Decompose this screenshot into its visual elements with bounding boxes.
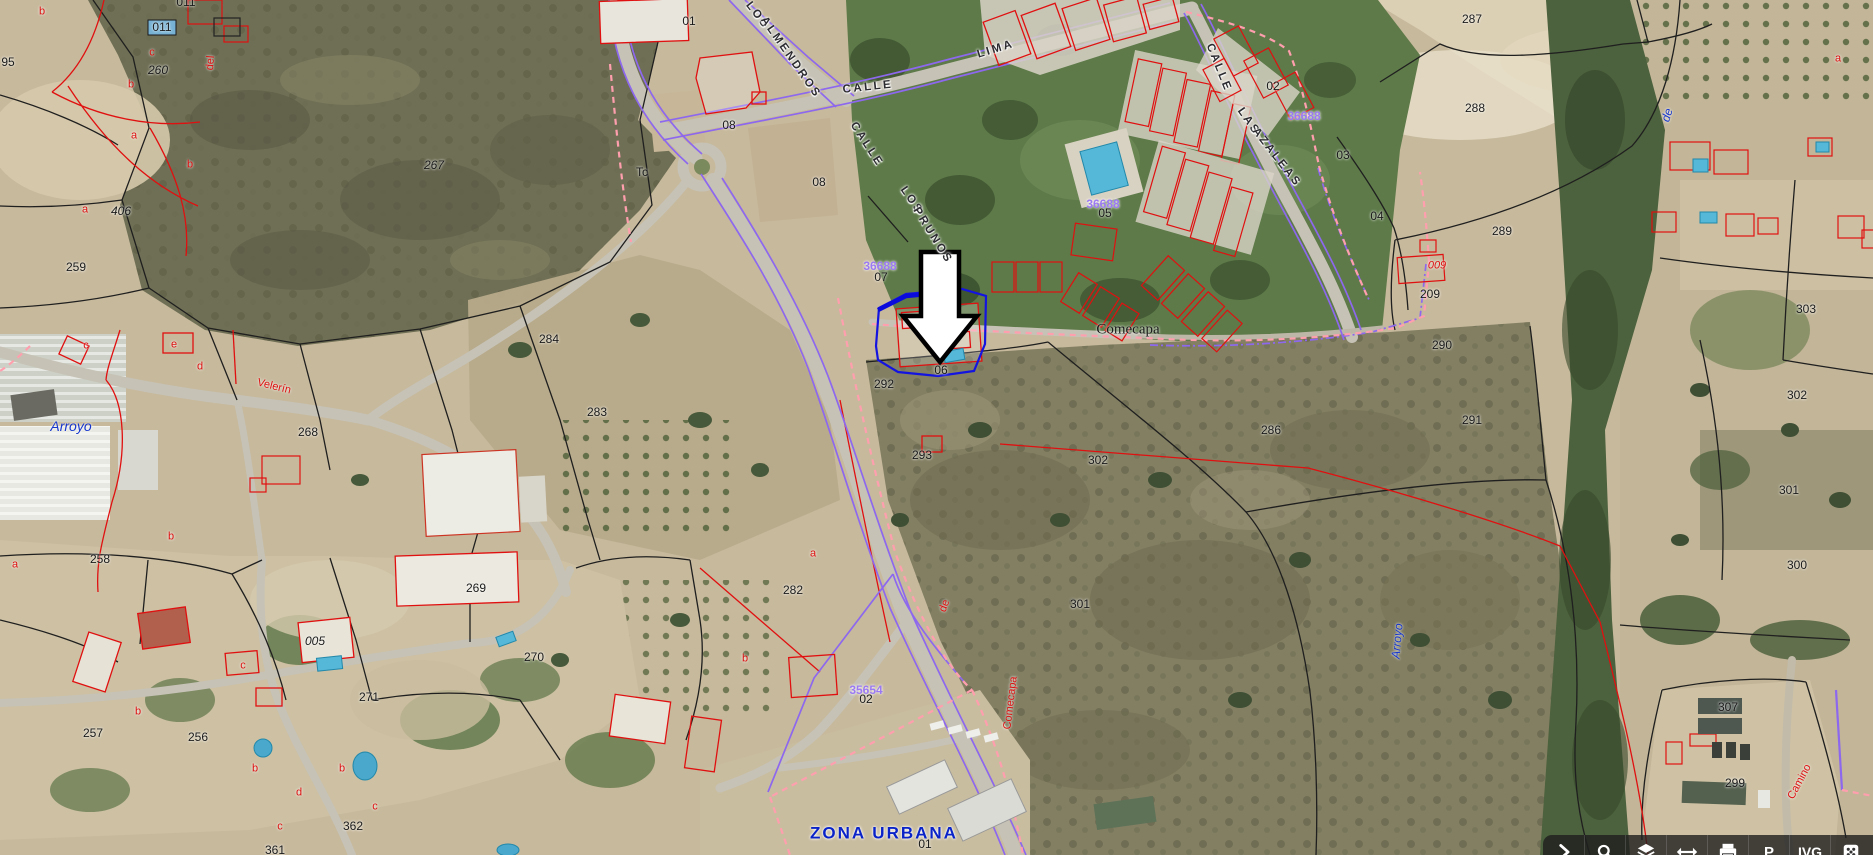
point-info-label: P xyxy=(1764,844,1774,855)
ivg-label: IVG xyxy=(1798,844,1822,855)
zoom-search-button[interactable] xyxy=(1584,835,1625,855)
printer-icon xyxy=(1718,842,1738,855)
map-viewport[interactable]: CALLELIMALOSALMENDROSCALLELOSPRUNOSCALLE… xyxy=(0,0,1873,855)
search-icon xyxy=(1596,843,1615,855)
measure-arrows-icon xyxy=(1676,845,1698,855)
ivg-button[interactable]: IVG xyxy=(1789,835,1830,855)
chevron-right-icon xyxy=(1555,843,1573,855)
layers-button[interactable] xyxy=(1625,835,1666,855)
point-info-button[interactable]: P xyxy=(1748,835,1789,855)
dice-icon xyxy=(1841,842,1861,855)
map-toolbar: P IVG xyxy=(1543,835,1873,855)
layers-icon xyxy=(1636,842,1656,855)
roundabout-island xyxy=(694,159,710,175)
print-button[interactable] xyxy=(1707,835,1748,855)
aerial-cadastral-canvas xyxy=(0,0,1873,855)
expand-toolbar-button[interactable] xyxy=(1543,835,1584,855)
dice-button[interactable] xyxy=(1830,835,1871,855)
measure-button[interactable] xyxy=(1666,835,1707,855)
